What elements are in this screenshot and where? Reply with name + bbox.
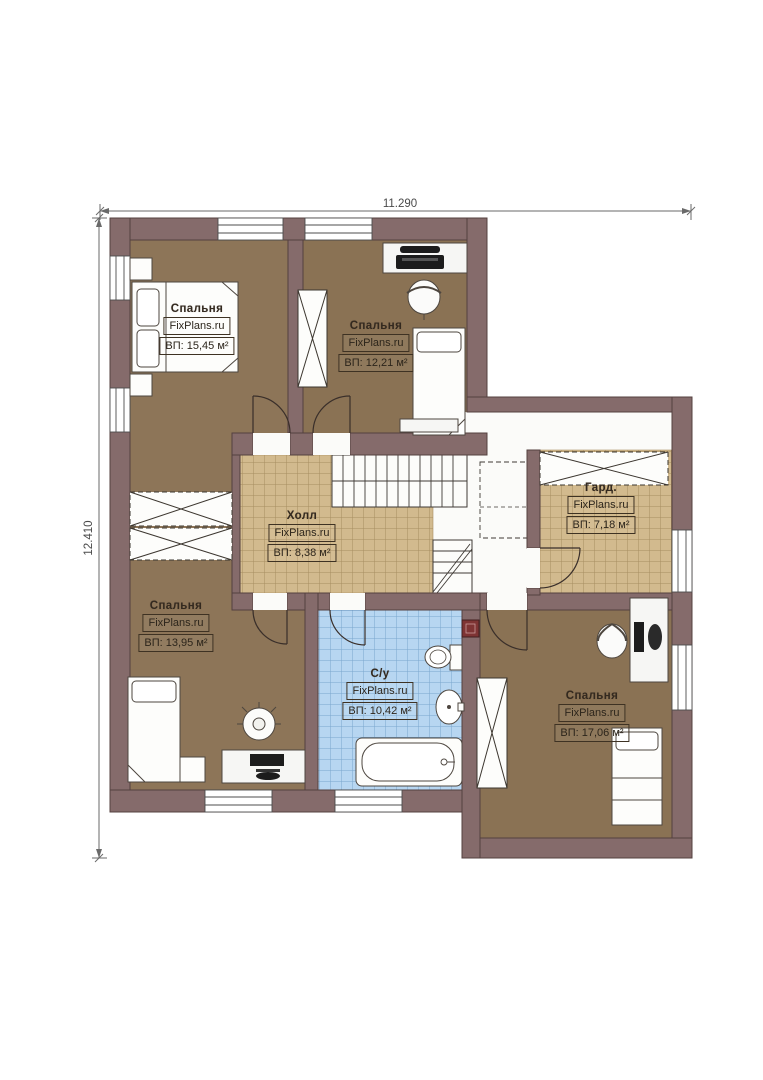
window-icon [335,790,402,812]
window-icon [205,790,272,812]
window-icon [672,530,692,592]
bench-icon [400,419,458,432]
pillow-icon [417,332,461,352]
toilet-icon [425,645,462,670]
vent-shaft-icon [462,620,479,637]
window-icon [672,645,692,710]
wall-wing-top [467,397,692,412]
wardrobe-closet-icon [130,492,232,526]
pillow-icon [616,732,658,750]
wardrobe-closet-icon [540,452,668,485]
window-icon [110,256,130,300]
wardrobe-closet-icon [130,528,232,560]
dimension-width-label: 11.290 [383,198,417,210]
floor-plan-drawing: 11.290 12.410 [0,0,763,1080]
wall-bathroom-left [305,593,318,790]
nightstand-icon [130,258,152,280]
wall-right-upper [467,218,487,412]
wall-wing-right [672,397,692,858]
wall-wardrobe-left [527,450,540,548]
wall-left [110,218,130,812]
wardrobe-closet-icon [298,290,327,387]
pillow-icon [137,289,159,326]
wardrobe-closet-icon [477,678,507,788]
pillow-icon [137,330,159,367]
printer-icon [396,246,444,269]
nightstand-icon [130,374,152,396]
bathtub-icon [356,738,462,786]
window-icon [305,218,372,240]
wall-top [110,218,487,240]
nightstand-icon [180,757,205,782]
floor-plan-page: 11.290 12.410 Спальня FixPlans.ru ВП: 15… [0,0,763,1080]
window-icon [110,388,130,432]
wall-bottom-main [110,790,480,812]
dimension-height-label: 12.410 [83,520,95,555]
wall-wing-bottom [462,838,692,858]
wall-hall-left [232,455,240,593]
pillow-icon [132,681,176,702]
window-icon [218,218,283,240]
office-chair-icon [597,624,627,658]
